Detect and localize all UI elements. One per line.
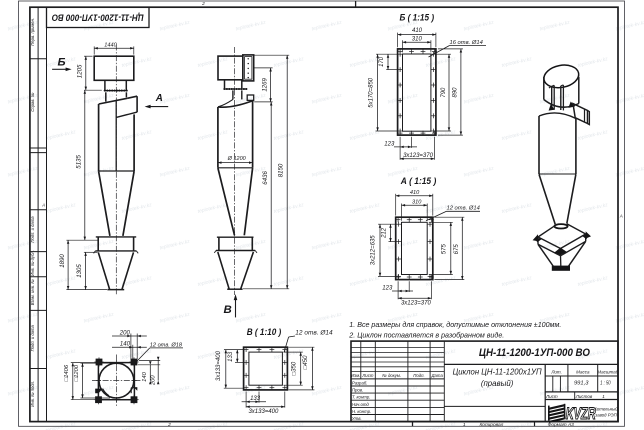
svg-text:Подп. и дата: Подп. и дата (30, 325, 35, 352)
svg-text:teplotek-kv.kz: teplotek-kv.kz (615, 312, 644, 325)
svg-text:□1406: □1406 (64, 364, 70, 381)
svg-text:teplotek-kv.kz: teplotek-kv.kz (0, 421, 1, 430)
svg-text:teplotek-kv.kz: teplotek-kv.kz (0, 275, 1, 288)
svg-text:140: 140 (142, 371, 148, 381)
svg-text:Инв. № дубл.: Инв. № дубл. (30, 250, 35, 276)
svg-text:teplotek-kv.kz: teplotek-kv.kz (7, 166, 39, 179)
svg-text:teplotek-kv.kz: teplotek-kv.kz (387, 239, 419, 252)
svg-text:991,3: 991,3 (574, 380, 589, 386)
svg-text:Котельный: Котельный (594, 407, 618, 412)
svg-text:teplotek-kv.kz: teplotek-kv.kz (159, 312, 191, 325)
svg-text:teplotek-kv.kz: teplotek-kv.kz (577, 202, 609, 215)
svg-text:5х170=850: 5х170=850 (368, 77, 374, 108)
svg-text:teplotek-kv.kz: teplotek-kv.kz (45, 275, 77, 288)
svg-text:410: 410 (410, 190, 420, 196)
svg-text:teplotek-kv.kz: teplotek-kv.kz (45, 129, 77, 142)
svg-text:teplotek-kv.kz: teplotek-kv.kz (501, 129, 533, 142)
svg-text:(правый): (правый) (481, 379, 514, 388)
svg-text:teplotek-kv.kz: teplotek-kv.kz (0, 202, 1, 215)
svg-text:170: 170 (379, 56, 385, 67)
svg-text:teplotek-kv.kz: teplotek-kv.kz (501, 202, 533, 215)
svg-text:А: А (41, 203, 45, 208)
svg-text:790: 790 (441, 87, 447, 98)
svg-text:1: 1 (602, 394, 605, 399)
svg-text:Разраб.: Разраб. (352, 380, 368, 385)
svg-text:teplotek-kv.kz: teplotek-kv.kz (45, 348, 77, 361)
svg-text:teplotek-kv.kz: teplotek-kv.kz (235, 312, 267, 325)
svg-text:teplotek-kv.kz: teplotek-kv.kz (425, 56, 457, 69)
svg-text:teplotek-kv.kz: teplotek-kv.kz (311, 20, 343, 33)
svg-text:Лист: Лист (361, 373, 373, 378)
svg-text:teplotek-kv.kz: teplotek-kv.kz (121, 202, 153, 215)
svg-text:teplotek-kv.kz: teplotek-kv.kz (273, 202, 305, 215)
svg-text:3х123=370: 3х123=370 (401, 301, 432, 307)
svg-text:12 отв. Ø14: 12 отв. Ø14 (295, 330, 333, 337)
svg-text:2: 2 (201, 1, 205, 7)
svg-text:teplotek-kv.kz: teplotek-kv.kz (539, 20, 571, 33)
svg-text:teplotek-kv.kz: teplotek-kv.kz (577, 129, 609, 142)
svg-text:675: 675 (454, 244, 460, 255)
svg-text:Н. контр.: Н. контр. (352, 409, 371, 414)
svg-text:Подп. и дата: Подп. и дата (30, 216, 35, 243)
svg-text:В ( 1:10 ): В ( 1:10 ) (247, 327, 282, 337)
svg-text:Взам. инв. №: Взам. инв. № (30, 279, 35, 305)
svg-text:□450: □450 (303, 355, 309, 369)
svg-text:1890: 1890 (59, 254, 66, 268)
svg-text:teplotek-kv.kz: teplotek-kv.kz (45, 202, 77, 215)
svg-text:5135: 5135 (76, 155, 83, 169)
svg-text:teplotek-kv.kz: teplotek-kv.kz (83, 312, 115, 325)
svg-text:teplotek-kv.kz: teplotek-kv.kz (159, 93, 191, 106)
svg-text:teplotek-kv.kz: teplotek-kv.kz (273, 129, 305, 142)
svg-text:1: 1 (463, 422, 466, 428)
svg-text:410: 410 (412, 28, 423, 34)
svg-text:ЦН-11-1200-1УП-000 ВО: ЦН-11-1200-1УП-000 ВО (51, 12, 144, 22)
svg-text:teplotek-kv.kz: teplotek-kv.kz (311, 239, 343, 252)
svg-text:teplotek-kv.kz: teplotek-kv.kz (539, 166, 571, 179)
svg-text:123: 123 (384, 141, 395, 147)
svg-text:1305: 1305 (76, 264, 83, 278)
svg-text:Нач.отд: Нач.отд (352, 402, 370, 407)
svg-text:teplotek-kv.kz: teplotek-kv.kz (463, 20, 495, 33)
svg-text:Б ( 1:15 ): Б ( 1:15 ) (400, 12, 435, 22)
svg-text:Масштаб: Масштаб (597, 370, 618, 375)
svg-text:teplotek-kv.kz: teplotek-kv.kz (197, 56, 229, 69)
svg-text:А ( 1:15 ): А ( 1:15 ) (400, 176, 437, 186)
svg-text:А: А (155, 93, 163, 104)
svg-text:teplotek-kv.kz: teplotek-kv.kz (349, 348, 381, 361)
svg-text:Ø 1200: Ø 1200 (227, 156, 247, 162)
svg-text:teplotek-kv.kz: teplotek-kv.kz (577, 56, 609, 69)
svg-text:teplotek-kv.kz: teplotek-kv.kz (197, 129, 229, 142)
svg-text:200: 200 (119, 330, 131, 336)
svg-text:Масса: Масса (576, 370, 590, 375)
svg-text:212: 212 (381, 227, 387, 239)
svg-text:teplotek-kv.kz: teplotek-kv.kz (0, 129, 1, 142)
svg-text:Лит.: Лит. (550, 370, 562, 375)
svg-text:teplotek-kv.kz: teplotek-kv.kz (273, 56, 305, 69)
svg-text:teplotek-kv.kz: teplotek-kv.kz (311, 93, 343, 106)
svg-text:Дата: Дата (431, 373, 444, 378)
svg-text:teplotek-kv.kz: teplotek-kv.kz (349, 275, 381, 288)
svg-text:133: 133 (228, 351, 234, 362)
svg-text:№ докум.: № докум. (382, 373, 401, 378)
svg-text:133: 133 (250, 396, 261, 402)
svg-text:teplotek-kv.kz: teplotek-kv.kz (159, 166, 191, 179)
svg-text:А: А (619, 214, 623, 219)
svg-text:310: 310 (412, 199, 422, 205)
svg-text:teplotek-kv.kz: teplotek-kv.kz (615, 166, 644, 179)
svg-text:200: 200 (150, 375, 156, 386)
svg-text:Утв.: Утв. (352, 416, 362, 421)
svg-text:3х123=370: 3х123=370 (403, 153, 434, 159)
svg-text:teplotek-kv.kz: teplotek-kv.kz (311, 166, 343, 179)
svg-text:teplotek-kv.kz: teplotek-kv.kz (615, 385, 644, 398)
svg-text:teplotek-kv.kz: teplotek-kv.kz (463, 166, 495, 179)
svg-text:2: 2 (167, 422, 171, 428)
svg-text:teplotek-kv.kz: teplotek-kv.kz (501, 275, 533, 288)
svg-text:teplotek-kv.kz: teplotek-kv.kz (311, 312, 343, 325)
svg-text:В: В (223, 304, 231, 316)
svg-text:teplotek-kv.kz: teplotek-kv.kz (197, 275, 229, 288)
svg-text:1269: 1269 (261, 78, 268, 92)
svg-text:teplotek-kv.kz: teplotek-kv.kz (159, 20, 191, 33)
svg-text:teplotek-kv.kz: teplotek-kv.kz (463, 93, 495, 106)
svg-text:Инв. № подл.: Инв. № подл. (30, 381, 35, 407)
svg-text:teplotek-kv.kz: teplotek-kv.kz (615, 239, 644, 252)
svg-text:3х212=635: 3х212=635 (370, 235, 376, 266)
svg-text:teplotek-kv.kz: teplotek-kv.kz (121, 129, 153, 142)
svg-text:ЦН-11-1200-1УП-000 ВО: ЦН-11-1200-1УП-000 ВО (479, 347, 591, 359)
svg-text:1205: 1205 (76, 64, 83, 78)
svg-text:teplotek-kv.kz: teplotek-kv.kz (501, 56, 533, 69)
svg-text:2. Циклон поставляется в разоб: 2. Циклон поставляется в разобранном вид… (348, 330, 504, 339)
svg-text:Изм.: Изм. (351, 373, 360, 378)
svg-text:teplotek-kv.kz: teplotek-kv.kz (235, 239, 267, 252)
svg-text:teplotek-kv.kz: teplotek-kv.kz (577, 275, 609, 288)
svg-text:завод РЭП: завод РЭП (594, 412, 617, 417)
svg-text:123: 123 (382, 285, 393, 291)
svg-text:890: 890 (452, 87, 458, 98)
svg-text:KVZR: KVZR (566, 405, 596, 423)
svg-text:teplotek-kv.kz: teplotek-kv.kz (615, 20, 644, 33)
svg-text:8150: 8150 (277, 163, 284, 177)
svg-text:1 : 50: 1 : 50 (600, 380, 611, 386)
svg-text:Справ. №: Справ. № (30, 92, 35, 111)
svg-text:teplotek-kv.kz: teplotek-kv.kz (463, 239, 495, 252)
svg-text:teplotek-kv.kz: teplotek-kv.kz (615, 93, 644, 106)
svg-text:1440: 1440 (104, 43, 117, 49)
svg-text:Б: Б (58, 57, 66, 69)
svg-text:teplotek-kv.kz: teplotek-kv.kz (197, 348, 229, 361)
svg-text:teplotek-kv.kz: teplotek-kv.kz (159, 239, 191, 252)
svg-text:Формат А3: Формат А3 (548, 422, 575, 428)
svg-text:teplotek-kv.kz: teplotek-kv.kz (387, 385, 419, 398)
svg-text:teplotek-kv.kz: teplotek-kv.kz (349, 202, 381, 215)
svg-text:teplotek-kv.kz: teplotek-kv.kz (349, 56, 381, 69)
svg-text:teplotek-kv.kz: teplotek-kv.kz (0, 348, 1, 361)
svg-text:575: 575 (442, 244, 448, 255)
svg-text:Копировал: Копировал (479, 422, 503, 428)
svg-text:12 отв. Ø14: 12 отв. Ø14 (447, 206, 480, 212)
svg-text:teplotek-kv.kz: teplotek-kv.kz (273, 275, 305, 288)
svg-text:140: 140 (120, 341, 131, 347)
svg-text:Подп.: Подп. (413, 373, 424, 378)
svg-text:Лист: Лист (545, 394, 558, 399)
svg-text:teplotek-kv.kz: teplotek-kv.kz (0, 56, 1, 69)
svg-text:teplotek-kv.kz: teplotek-kv.kz (235, 20, 267, 33)
svg-text:teplotek-kv.kz: teplotek-kv.kz (159, 385, 191, 398)
svg-text:Перв. примен.: Перв. примен. (30, 18, 35, 46)
svg-text:Листов: Листов (575, 394, 593, 399)
svg-text:teplotek-kv.kz: teplotek-kv.kz (197, 202, 229, 215)
svg-text:Пров.: Пров. (352, 388, 363, 393)
svg-text:teplotek-kv.kz: teplotek-kv.kz (7, 312, 39, 325)
svg-text:□1200: □1200 (74, 364, 80, 381)
svg-text:teplotek-kv.kz: teplotek-kv.kz (311, 385, 343, 398)
svg-text:6436: 6436 (262, 171, 269, 185)
svg-text:1. Все размеры для справок, до: 1. Все размеры для справок, допустимые о… (349, 320, 561, 329)
svg-text:Циклон ЦН-11-1200х1УП: Циклон ЦН-11-1200х1УП (453, 367, 543, 377)
svg-text:3х133=400: 3х133=400 (248, 409, 279, 415)
svg-text:teplotek-kv.kz: teplotek-kv.kz (121, 56, 153, 69)
svg-text:310: 310 (412, 37, 423, 43)
svg-text:3х133=400: 3х133=400 (216, 350, 222, 381)
svg-text:□350: □350 (292, 361, 298, 375)
svg-text:Т. контр.: Т. контр. (352, 395, 371, 400)
